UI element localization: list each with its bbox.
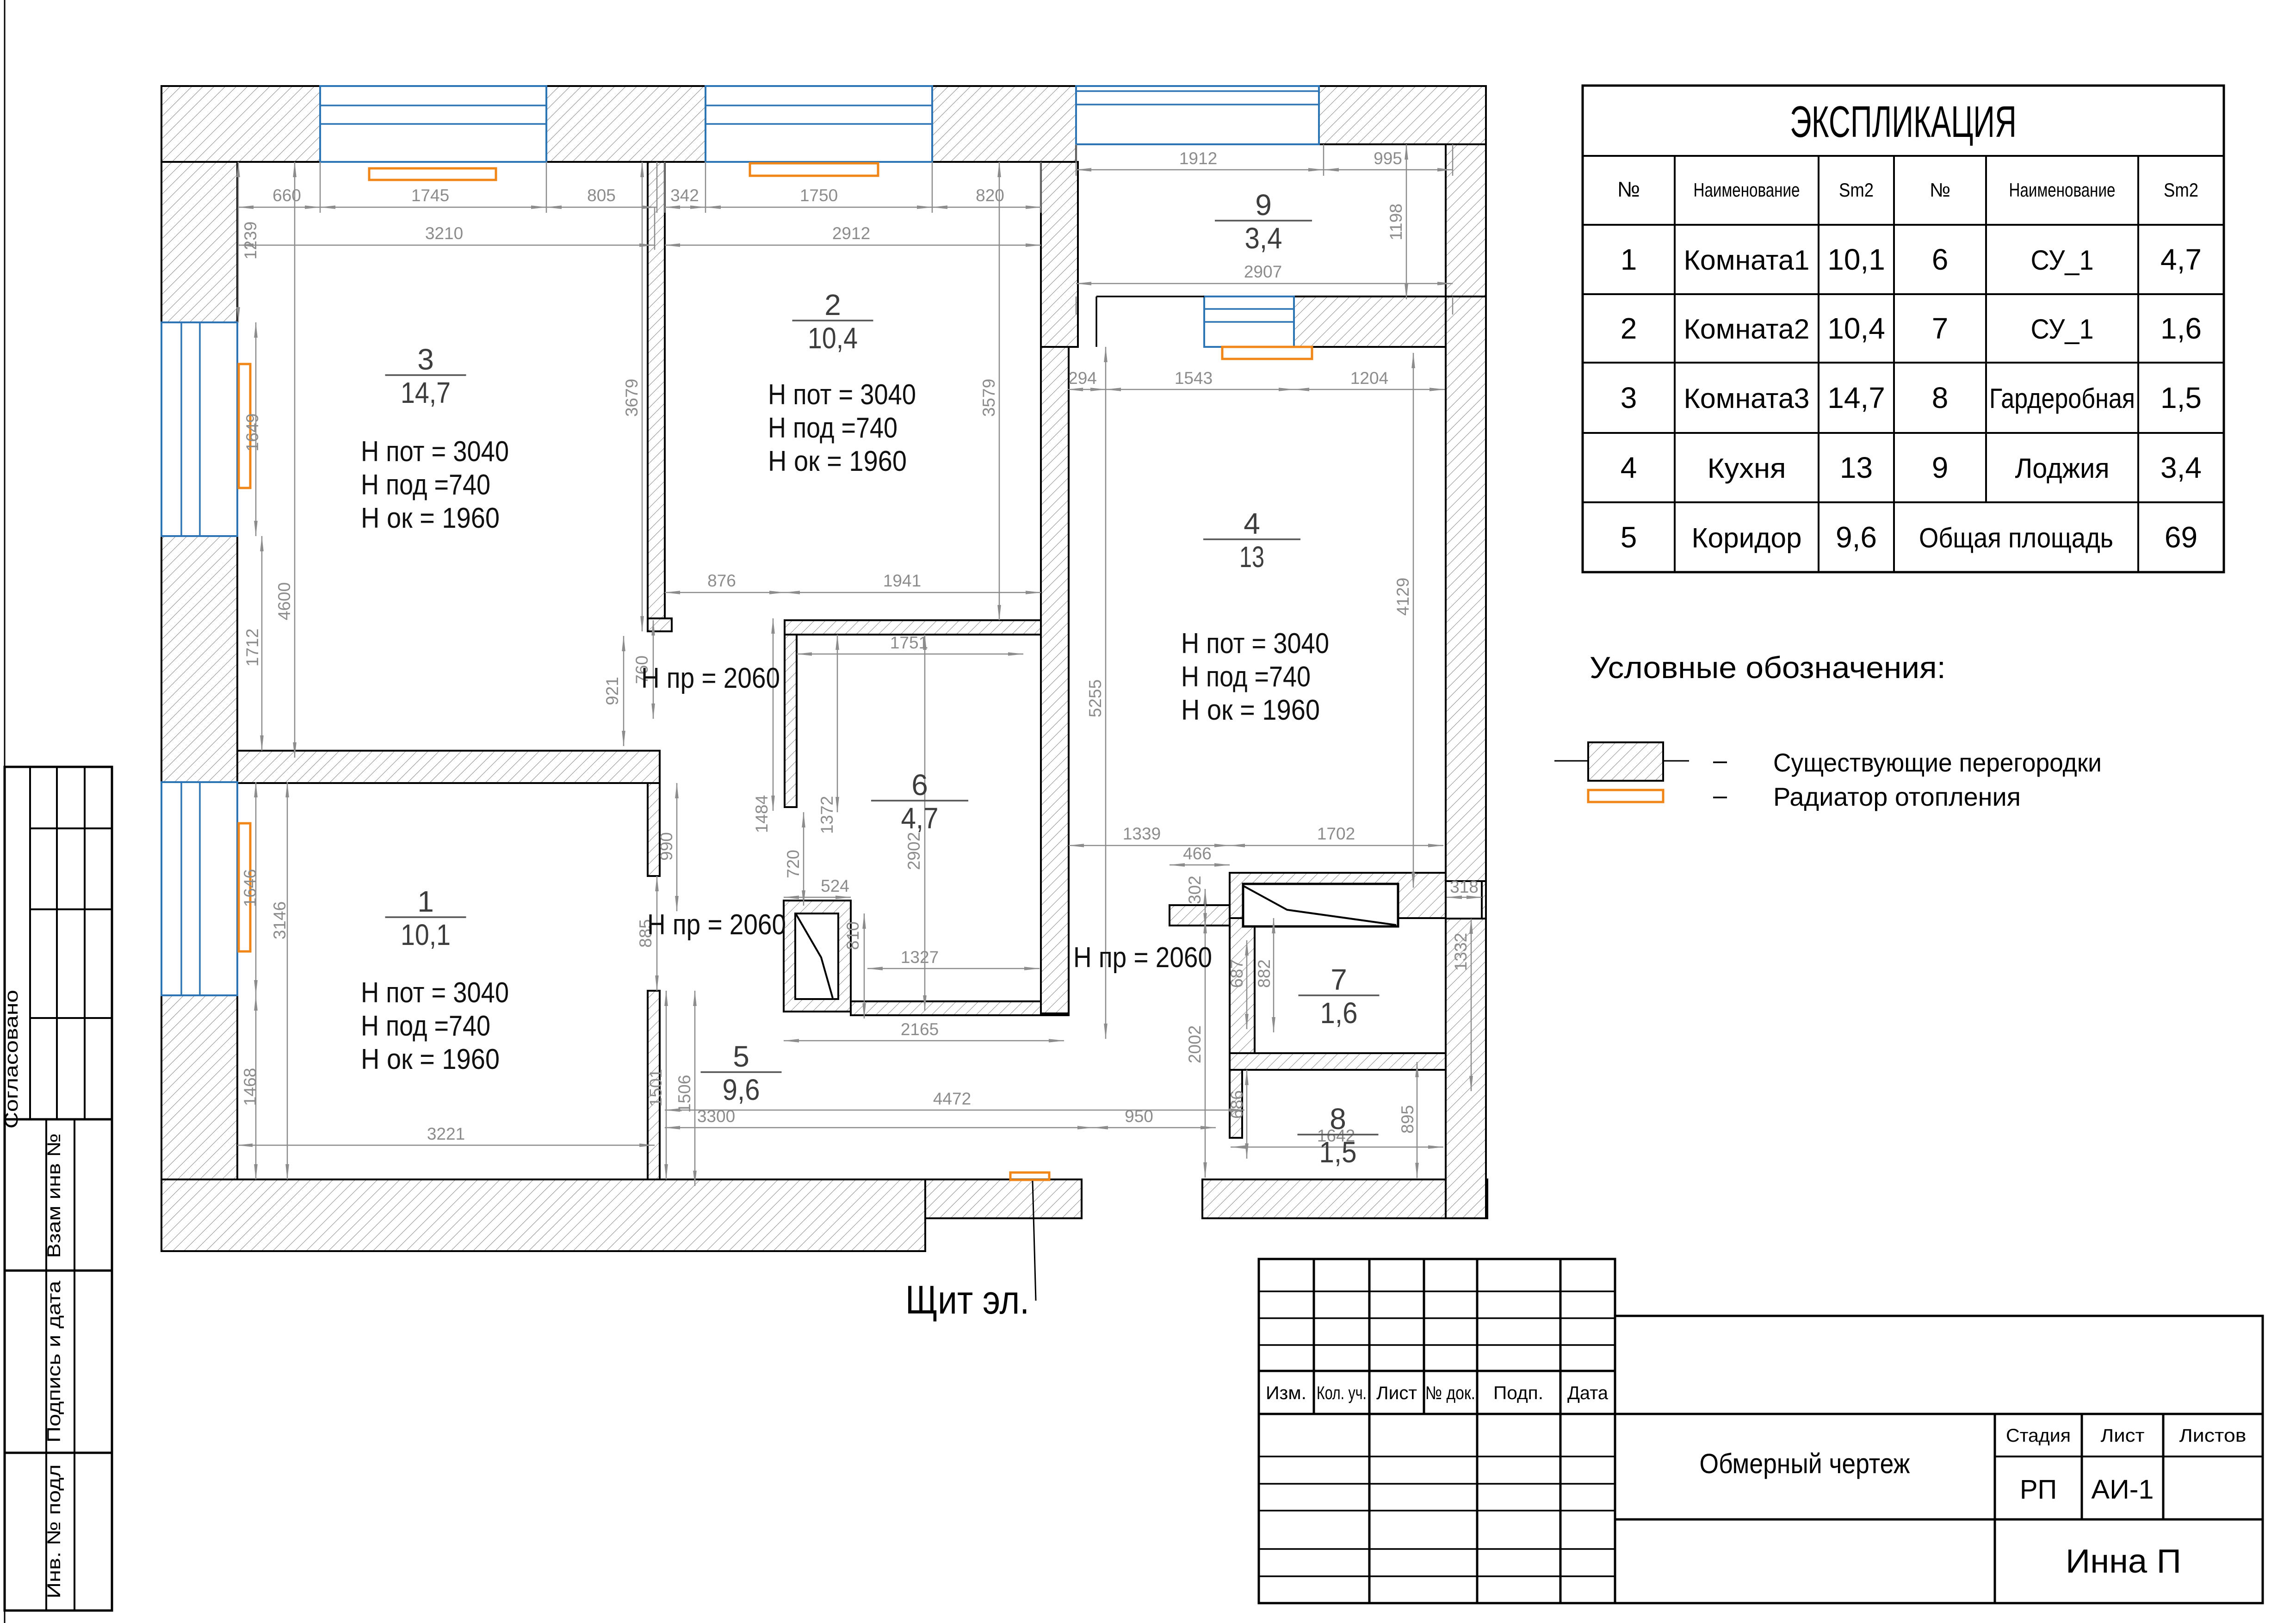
svg-text:1751: 1751 [890, 633, 928, 652]
svg-text:13: 13 [1840, 451, 1873, 484]
svg-text:Лист: Лист [1376, 1383, 1417, 1403]
svg-text:921: 921 [603, 677, 622, 705]
svg-text:Взам инв №: Взам инв № [44, 1133, 64, 1258]
svg-text:3,4: 3,4 [1245, 222, 1282, 255]
svg-text:2: 2 [824, 288, 841, 321]
svg-text:660: 660 [272, 186, 301, 205]
svg-text:3: 3 [1621, 381, 1637, 414]
svg-text:2165: 2165 [901, 1020, 939, 1039]
svg-text:Общая площадь: Общая площадь [1919, 523, 2113, 554]
svg-text:1468: 1468 [241, 1068, 260, 1106]
svg-text:Н пр = 2060: Н пр = 2060 [647, 909, 786, 941]
svg-text:СУ_1: СУ_1 [2031, 314, 2094, 345]
svg-text:№: № [1930, 179, 1950, 201]
svg-text:3210: 3210 [425, 224, 463, 243]
svg-text:1912: 1912 [1179, 149, 1217, 168]
svg-text:–: – [1713, 782, 1727, 809]
svg-text:Наименование: Наименование [1694, 179, 1800, 201]
svg-text:Комната3: Комната3 [1684, 383, 1810, 414]
svg-text:1: 1 [417, 885, 434, 918]
svg-text:3679: 3679 [622, 379, 641, 417]
svg-text:1: 1 [1621, 243, 1637, 276]
svg-text:Н под =740: Н под =740 [361, 469, 490, 501]
svg-text:–: – [1713, 747, 1727, 774]
svg-text:Комната1: Комната1 [1684, 245, 1810, 276]
svg-text:1204: 1204 [1350, 369, 1388, 388]
svg-text:2002: 2002 [1185, 1025, 1204, 1063]
svg-text:10,4: 10,4 [808, 321, 858, 355]
svg-text:1501: 1501 [646, 1069, 665, 1107]
svg-text:Инв. № подл: Инв. № подл [44, 1464, 64, 1598]
svg-text:1712: 1712 [243, 629, 262, 666]
svg-text:5: 5 [733, 1040, 749, 1073]
svg-text:4600: 4600 [275, 582, 294, 620]
svg-text:2912: 2912 [832, 224, 870, 243]
svg-text:Подпись и дата: Подпись и дата [44, 1280, 64, 1443]
svg-text:Наименование: Наименование [2009, 179, 2116, 201]
svg-text:Дата: Дата [1567, 1383, 1609, 1403]
svg-text:69: 69 [2165, 521, 2197, 554]
svg-text:3300: 3300 [697, 1107, 735, 1126]
svg-text:Изм.: Изм. [1266, 1383, 1306, 1403]
svg-text:2902: 2902 [904, 832, 923, 870]
svg-text:Комната2: Комната2 [1684, 314, 1810, 345]
svg-text:990: 990 [657, 832, 676, 861]
svg-text:Кухня: Кухня [1708, 453, 1786, 484]
svg-text:Н ок = 1960: Н ок = 1960 [361, 502, 500, 534]
svg-text:Н пот = 3040: Н пот = 3040 [1181, 628, 1329, 660]
svg-text:10,1: 10,1 [401, 918, 451, 951]
svg-text:1,6: 1,6 [1320, 996, 1358, 1030]
svg-text:1198: 1198 [1386, 204, 1405, 241]
svg-text:4129: 4129 [1393, 578, 1412, 616]
svg-text:Н пр = 2060: Н пр = 2060 [641, 662, 780, 694]
svg-text:1,6: 1,6 [2160, 312, 2202, 345]
svg-text:4: 4 [1621, 451, 1637, 484]
svg-text:524: 524 [821, 876, 849, 895]
svg-text:1750: 1750 [800, 186, 838, 205]
svg-text:Радиатор отопления: Радиатор отопления [1773, 782, 2021, 811]
svg-text:1,5: 1,5 [2160, 381, 2202, 414]
svg-text:14,7: 14,7 [1827, 381, 1885, 414]
svg-text:7: 7 [1932, 312, 1949, 345]
svg-text:4,7: 4,7 [2160, 243, 2202, 276]
svg-text:1239: 1239 [241, 222, 260, 259]
svg-text:Инна П: Инна П [2066, 1543, 2181, 1580]
svg-text:Н пот = 3040: Н пот = 3040 [361, 977, 509, 1009]
svg-text:882: 882 [1255, 959, 1274, 988]
svg-text:805: 805 [587, 186, 616, 205]
svg-text:Щит эл.: Щит эл. [905, 1278, 1029, 1322]
svg-text:302: 302 [1185, 876, 1204, 904]
svg-text:Лоджия: Лоджия [2015, 453, 2110, 484]
svg-text:820: 820 [976, 186, 1004, 205]
svg-text:1649: 1649 [243, 413, 262, 451]
svg-text:1702: 1702 [1317, 824, 1355, 843]
svg-text:РП: РП [2020, 1475, 2057, 1505]
svg-text:1,5: 1,5 [1319, 1135, 1357, 1169]
svg-text:Н под =740: Н под =740 [361, 1010, 490, 1042]
svg-text:9: 9 [1932, 451, 1949, 484]
svg-text:6: 6 [911, 768, 928, 802]
svg-text:4472: 4472 [933, 1089, 971, 1108]
svg-text:Н под =740: Н под =740 [1181, 661, 1311, 693]
svg-text:1327: 1327 [901, 948, 939, 967]
svg-text:Существующие перегородки: Существующие перегородки [1773, 748, 2102, 777]
svg-text:1941: 1941 [883, 571, 921, 590]
svg-text:Н пр = 2060: Н пр = 2060 [1073, 942, 1212, 974]
svg-text:995: 995 [1374, 149, 1402, 168]
svg-text:9,6: 9,6 [1836, 521, 1877, 554]
svg-text:1745: 1745 [411, 186, 449, 205]
svg-text:950: 950 [1125, 1107, 1153, 1126]
svg-text:14,7: 14,7 [401, 376, 451, 409]
svg-text:Коридор: Коридор [1692, 523, 1802, 554]
svg-text:3: 3 [417, 343, 434, 376]
svg-text:294: 294 [1068, 369, 1097, 388]
svg-text:Стадия: Стадия [2006, 1426, 2071, 1446]
svg-text:3579: 3579 [979, 379, 998, 417]
svg-text:Условные обозначения:: Условные обозначения: [1590, 650, 1946, 685]
svg-text:466: 466 [1183, 844, 1212, 863]
svg-text:1332: 1332 [1451, 933, 1470, 971]
svg-text:8: 8 [1330, 1102, 1346, 1135]
svg-text:1646: 1646 [241, 869, 260, 907]
svg-text:Sm2: Sm2 [1839, 179, 1874, 201]
svg-text:2907: 2907 [1244, 262, 1282, 281]
svg-text:3,4: 3,4 [2160, 451, 2202, 484]
svg-text:8: 8 [1932, 381, 1949, 414]
svg-text:АИ-1: АИ-1 [2092, 1475, 2154, 1505]
svg-text:3146: 3146 [270, 901, 289, 939]
svg-text:876: 876 [707, 571, 736, 590]
svg-text:ЭКСПЛИКАЦИЯ: ЭКСПЛИКАЦИЯ [1790, 97, 2017, 147]
svg-text:№ док.: № док. [1425, 1383, 1475, 1403]
svg-text:1484: 1484 [752, 795, 771, 833]
svg-text:Sm2: Sm2 [2164, 179, 2198, 201]
svg-text:Лист: Лист [2101, 1426, 2145, 1446]
svg-text:10,1: 10,1 [1827, 243, 1885, 276]
svg-text:1506: 1506 [675, 1075, 694, 1113]
svg-text:3221: 3221 [427, 1124, 465, 1143]
svg-text:Гардеробная: Гардеробная [1989, 383, 2135, 414]
svg-text:895: 895 [1398, 1105, 1417, 1134]
svg-text:СУ_1: СУ_1 [2031, 245, 2094, 276]
svg-text:9,6: 9,6 [723, 1073, 760, 1106]
svg-text:Н ок = 1960: Н ок = 1960 [768, 445, 907, 477]
svg-text:Н ок = 1960: Н ок = 1960 [1181, 694, 1320, 726]
svg-text:318: 318 [1450, 877, 1479, 896]
svg-text:6: 6 [1932, 243, 1949, 276]
svg-text:Н пот = 3040: Н пот = 3040 [768, 379, 916, 411]
svg-text:720: 720 [784, 850, 803, 878]
svg-text:Н ок = 1960: Н ок = 1960 [361, 1043, 500, 1075]
svg-text:Обмерный чертеж: Обмерный чертеж [1700, 1448, 1910, 1479]
svg-text:1543: 1543 [1175, 369, 1213, 388]
svg-text:4: 4 [1244, 507, 1260, 540]
svg-text:2: 2 [1621, 312, 1637, 345]
svg-text:Листов: Листов [2179, 1426, 2246, 1446]
svg-text:5: 5 [1621, 521, 1637, 554]
svg-text:1372: 1372 [817, 796, 836, 834]
svg-text:686: 686 [1227, 1090, 1246, 1119]
svg-text:342: 342 [670, 186, 699, 205]
svg-text:10,4: 10,4 [1827, 312, 1885, 345]
svg-text:Кол. уч.: Кол. уч. [1317, 1383, 1367, 1403]
svg-text:9: 9 [1255, 188, 1272, 222]
svg-text:13: 13 [1239, 540, 1264, 574]
svg-text:5255: 5255 [1086, 679, 1105, 717]
svg-text:Н под =740: Н под =740 [768, 412, 897, 444]
svg-text:Н пот = 3040: Н пот = 3040 [361, 436, 509, 468]
svg-text:4,7: 4,7 [901, 802, 939, 835]
svg-text:810: 810 [843, 921, 862, 950]
svg-text:№: № [1617, 177, 1640, 201]
svg-text:Согласовано: Согласовано [1, 990, 22, 1129]
svg-text:Подп.: Подп. [1493, 1383, 1543, 1403]
svg-text:687: 687 [1227, 959, 1246, 988]
svg-text:7: 7 [1331, 963, 1347, 996]
svg-text:1339: 1339 [1123, 824, 1161, 843]
